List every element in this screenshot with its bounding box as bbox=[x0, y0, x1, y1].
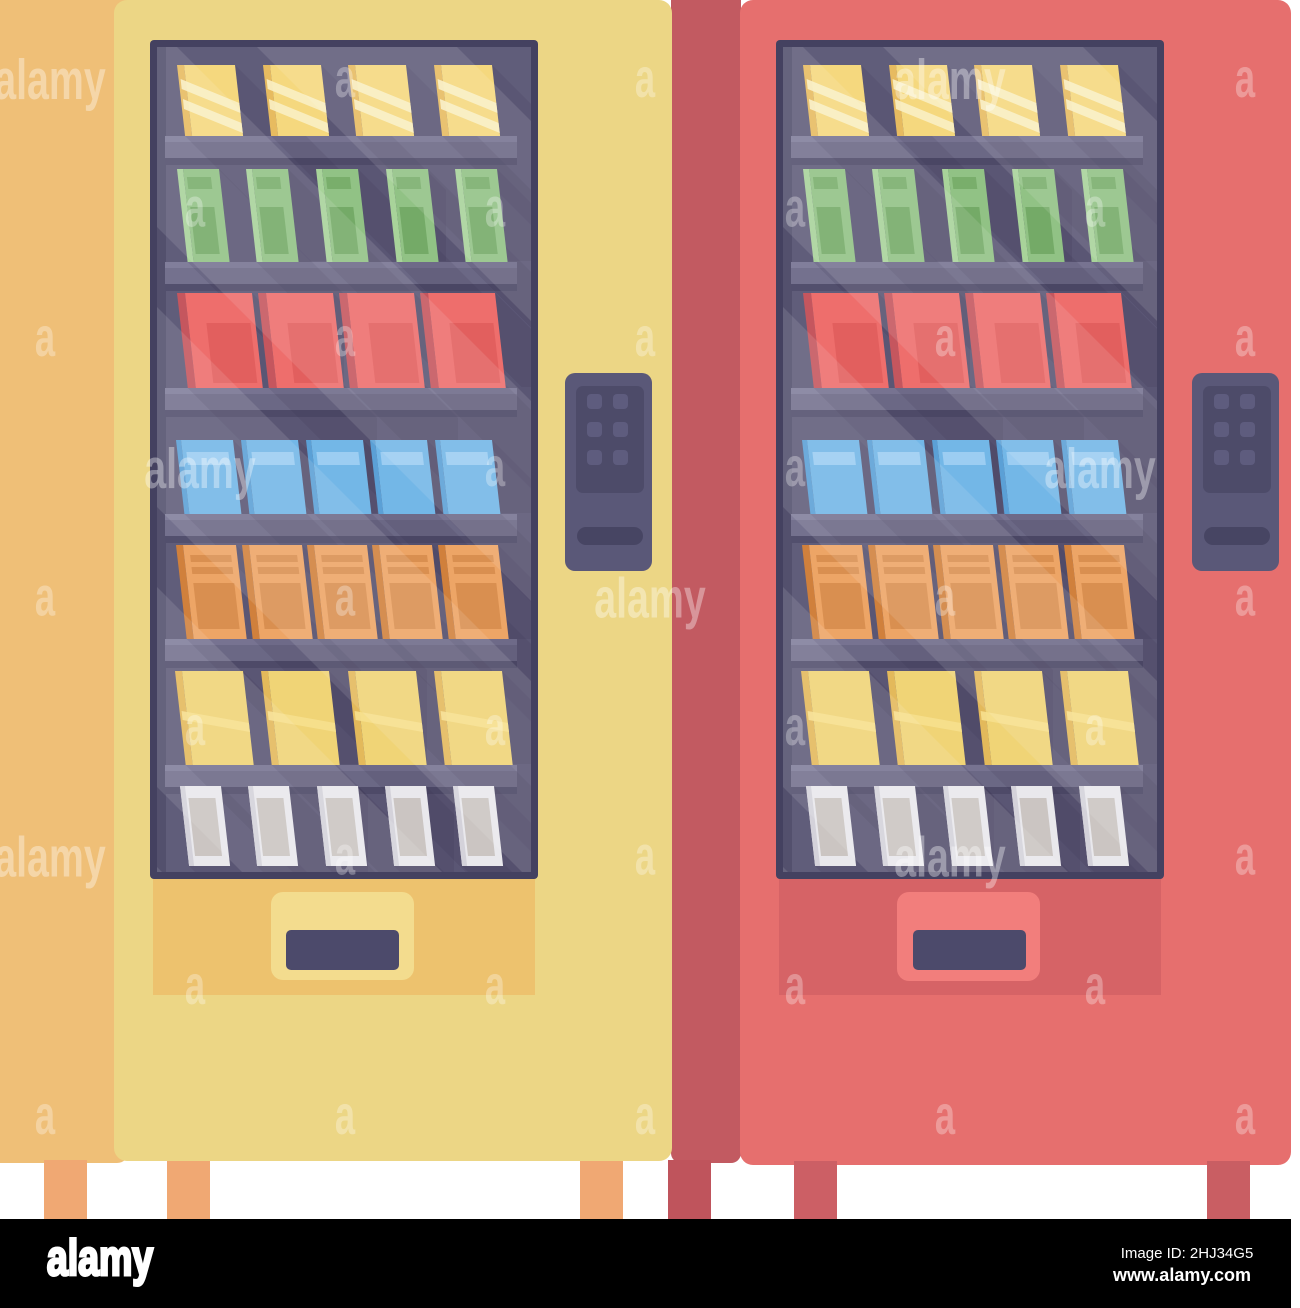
svg-text:a: a bbox=[1235, 566, 1256, 629]
svg-text:a: a bbox=[485, 695, 506, 758]
svg-text:a: a bbox=[185, 177, 206, 240]
svg-text:a: a bbox=[1235, 1084, 1256, 1147]
svg-text:a: a bbox=[335, 306, 356, 369]
svg-text:a: a bbox=[485, 436, 506, 499]
svg-text:a: a bbox=[335, 1084, 356, 1147]
svg-text:a: a bbox=[935, 1084, 956, 1147]
svg-text:a: a bbox=[1235, 825, 1256, 888]
svg-text:alamy: alamy bbox=[0, 827, 106, 890]
svg-text:a: a bbox=[635, 1084, 656, 1147]
svg-text:a: a bbox=[35, 1084, 56, 1147]
svg-text:a: a bbox=[935, 306, 956, 369]
svg-text:a: a bbox=[1085, 177, 1106, 240]
svg-text:a: a bbox=[1235, 47, 1256, 110]
svg-text:a: a bbox=[185, 954, 206, 1017]
svg-text:a: a bbox=[935, 566, 956, 629]
svg-text:alamy: alamy bbox=[144, 438, 255, 501]
svg-text:a: a bbox=[1235, 306, 1256, 369]
svg-text:a: a bbox=[785, 436, 806, 499]
svg-text:a: a bbox=[1085, 695, 1106, 758]
svg-text:a: a bbox=[785, 954, 806, 1017]
svg-text:alamy: alamy bbox=[0, 49, 106, 112]
svg-text:Image ID: 2HJ34G5: Image ID: 2HJ34G5 bbox=[1121, 1245, 1254, 1262]
svg-text:a: a bbox=[635, 825, 656, 888]
svg-text:alamy: alamy bbox=[894, 49, 1005, 112]
svg-text:a: a bbox=[635, 306, 656, 369]
svg-text:a: a bbox=[785, 177, 806, 240]
svg-text:a: a bbox=[635, 47, 656, 110]
svg-text:alamy: alamy bbox=[594, 567, 705, 630]
svg-text:a: a bbox=[485, 954, 506, 1017]
svg-text:alamy: alamy bbox=[894, 827, 1005, 890]
svg-text:a: a bbox=[1085, 954, 1106, 1017]
svg-text:www.alamy.com: www.alamy.com bbox=[1112, 1265, 1251, 1285]
svg-text:a: a bbox=[335, 566, 356, 629]
svg-text:a: a bbox=[785, 695, 806, 758]
svg-text:a: a bbox=[35, 306, 56, 369]
svg-text:a: a bbox=[485, 177, 506, 240]
svg-text:a: a bbox=[335, 47, 356, 110]
svg-text:a: a bbox=[35, 566, 56, 629]
svg-text:a: a bbox=[185, 695, 206, 758]
svg-text:a: a bbox=[335, 825, 356, 888]
svg-text:alamy: alamy bbox=[47, 1231, 154, 1286]
svg-text:alamy: alamy bbox=[1044, 438, 1155, 501]
